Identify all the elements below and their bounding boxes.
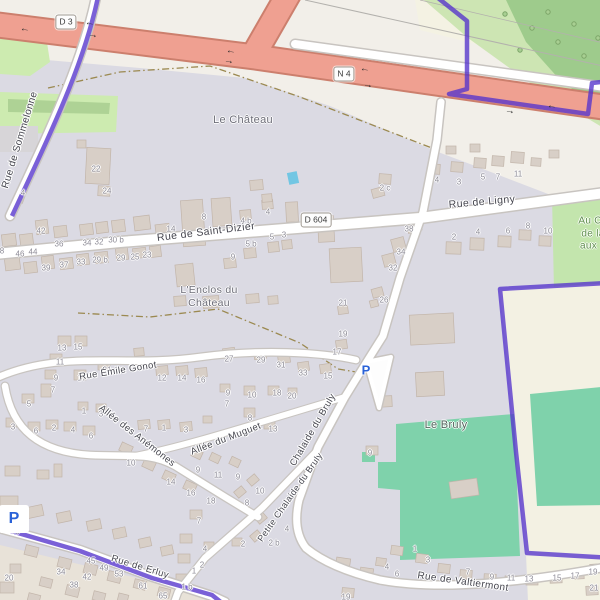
- map-base: [0, 0, 600, 600]
- map-canvas[interactable]: ←←→←→←→→← 846444236343230 b39373329 b292…: [0, 0, 600, 600]
